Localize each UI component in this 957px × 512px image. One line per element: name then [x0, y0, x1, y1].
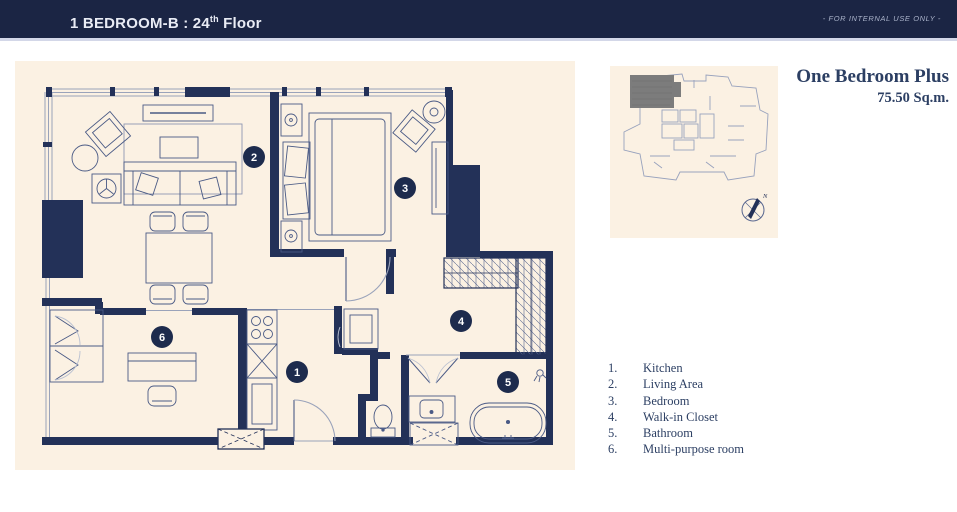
hall-shaft	[338, 309, 378, 349]
compass-north-label: N	[762, 193, 768, 200]
marker-bathroom: 5	[497, 371, 519, 393]
bedroom-furniture	[281, 101, 448, 252]
page-title-text: 1 BEDROOM-B : 24	[70, 15, 210, 32]
floor-plan-panel: 1 2 3 4 5 6	[15, 61, 575, 470]
legend-label: Bedroom	[643, 393, 690, 409]
room-legend: 1. Kitchen 2. Living Area 3. Bedroom 4. …	[596, 360, 744, 458]
page-title: 1 BEDROOM-B : 24th Floor	[70, 0, 262, 38]
legend-label: Walk-in Closet	[643, 409, 718, 425]
marker-walkin-closet: 4	[450, 310, 472, 332]
legend-row-multipurpose: 6. Multi-purpose room	[596, 441, 744, 457]
marker-living-area: 2	[243, 146, 265, 168]
svg-text:5: 5	[505, 377, 511, 389]
page-title-suffix: Floor	[219, 15, 262, 32]
legend-num: 6.	[596, 441, 643, 457]
unit-title-block: One Bedroom Plus 75.50 Sq.m.	[669, 66, 949, 107]
walkin-wardrobe	[444, 258, 546, 355]
bedroom-door	[346, 257, 390, 301]
marker-kitchen: 1	[286, 361, 308, 383]
legend-num: 1.	[596, 360, 643, 376]
floor-plan-drawing: 1 2 3 4 5 6	[15, 61, 575, 470]
floorplan-sheet: 1 BEDROOM-B : 24th Floor - FOR INTERNAL …	[0, 0, 957, 512]
svg-text:4: 4	[458, 316, 465, 328]
bathroom-double-doors	[408, 358, 458, 383]
legend-num: 5.	[596, 425, 643, 441]
unit-area: 75.50 Sq.m.	[669, 90, 949, 107]
svg-text:1: 1	[294, 367, 300, 379]
shower-icon	[534, 370, 546, 382]
internal-use-note: - FOR INTERNAL USE ONLY -	[823, 0, 941, 38]
svg-text:3: 3	[402, 183, 408, 195]
closet-bifold-doors	[50, 310, 103, 382]
legend-row-bathroom: 5. Bathroom	[596, 425, 744, 441]
legend-row-kitchen: 1. Kitchen	[596, 360, 744, 376]
living-area-furniture	[72, 105, 242, 304]
marker-bedroom: 3	[394, 177, 416, 199]
header-bar: 1 BEDROOM-B : 24th Floor - FOR INTERNAL …	[0, 0, 957, 41]
legend-num: 4.	[596, 409, 643, 425]
service-shafts	[218, 429, 264, 449]
legend-label: Living Area	[643, 376, 703, 392]
legend-row-walkin-closet: 4. Walk-in Closet	[596, 409, 744, 425]
legend-label: Multi-purpose room	[643, 441, 744, 457]
entrance-door	[294, 400, 335, 441]
kitchen-counter	[247, 310, 277, 430]
svg-text:6: 6	[159, 332, 165, 344]
svg-text:2: 2	[251, 152, 257, 164]
legend-num: 2.	[596, 376, 643, 392]
multipurpose-furniture	[128, 353, 196, 406]
legend-row-living-area: 2. Living Area	[596, 376, 744, 392]
legend-label: Bathroom	[643, 425, 693, 441]
legend-num: 3.	[596, 393, 643, 409]
marker-multipurpose: 6	[151, 326, 173, 348]
page-title-sup: th	[210, 14, 219, 24]
bathroom-fixtures	[371, 370, 546, 445]
legend-row-bedroom: 3. Bedroom	[596, 393, 744, 409]
legend-label: Kitchen	[643, 360, 683, 376]
compass-icon: N	[742, 193, 768, 221]
unit-name: One Bedroom Plus	[669, 66, 949, 88]
